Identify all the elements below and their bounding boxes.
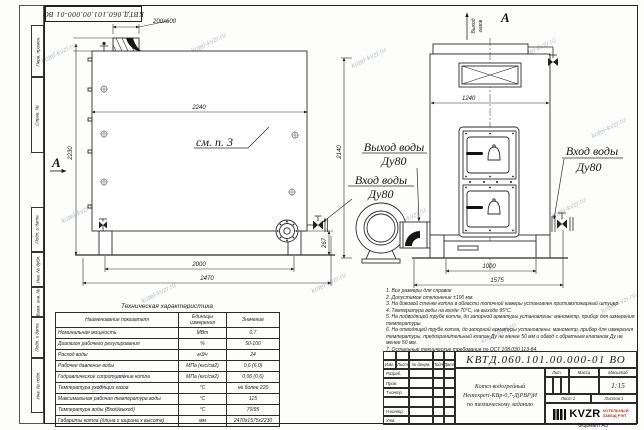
blower-fan <box>356 203 406 263</box>
tb-mass-cell <box>569 377 599 394</box>
title-block: Изм. Лист № докум. Подп. Дата Разраб. Пр… <box>383 351 637 425</box>
spec-value: 0,7 <box>227 328 280 339</box>
drawing-sheet: kotel-kvzr.ru kotel-kvzr.ru kotel-kvzr.r… <box>0 0 644 430</box>
water-outlet-label: Выход воды <box>364 140 425 154</box>
spec-table-block: Техническая характеристика Наименование … <box>55 303 279 427</box>
kvzr-logo-text: KVZR <box>569 408 600 420</box>
dim-chimney-label: 200х600 <box>152 19 177 25</box>
outlet-flange <box>276 220 298 242</box>
flue-stub <box>113 38 142 51</box>
front-inlet-label: Вход воды <box>566 144 618 158</box>
spec-name: Максимальная рабочая температура воды <box>56 394 179 405</box>
section-a-left: А <box>51 155 61 170</box>
spec-row: Диапазон рабочего регулирования%50-100 <box>56 339 280 350</box>
spec-name: Номинальная мощность <box>56 328 179 339</box>
tb-logo-cell: KVZR КОТЕЛЬНЫЙ ЗАВОД РЭП <box>545 403 637 425</box>
dim-2140-label: 2140 <box>337 145 343 160</box>
spec-row: Температура уходящих газов°Сне более 220 <box>56 383 280 394</box>
spec-value: 115 <box>227 394 280 405</box>
tb-cell <box>409 351 433 360</box>
see-note-label: см. п. 3 <box>196 135 233 149</box>
tb-cell <box>444 351 455 360</box>
spec-row: Габариты котла (длина х ширина х высота)… <box>56 416 280 427</box>
tb-mass-header: Масса <box>569 368 599 377</box>
technical-notes: 1. Все размеры для справок 2. Допустимое… <box>386 288 636 353</box>
spec-units: % <box>179 339 227 350</box>
dim-2230-label: 2230 <box>68 146 74 161</box>
section-a-top: А <box>500 10 510 25</box>
tb-sheets-cell: Листов 1 <box>591 394 637 403</box>
spec-row: Номинальная мощностьМВт0,7 <box>56 328 280 339</box>
spec-table-title: Техническая характеристика <box>55 303 279 310</box>
tb-row-razrab: Разраб. <box>383 369 409 378</box>
tb-cell <box>444 397 455 407</box>
tb-cell <box>433 416 444 425</box>
dim-1240-label: 1240 <box>462 96 476 102</box>
spec-name: Габариты котла (длина х ширина х высота) <box>56 416 179 427</box>
spec-name: Диапазон рабочего регулирования <box>56 339 179 350</box>
spec-header-row: Наименование показателя Единицы измерени… <box>56 313 280 328</box>
note-line: 5. На подводящей трубе котла, до запорно… <box>386 314 636 327</box>
tb-cell <box>409 378 433 388</box>
note-line: 3. На боковой стенке котла в области топ… <box>386 301 636 308</box>
spec-row: Рабочее давление водыМПа (кгс/см2)0,6 (6… <box>56 361 280 372</box>
tb-project-title-cell: Котел водогрейный Heatexpert-КВр-0,7-Д(Р… <box>455 368 545 425</box>
tb-cell <box>409 369 433 378</box>
spec-col-value: Значение <box>227 313 280 328</box>
spec-value: 70/95 <box>227 405 280 416</box>
tb-cell <box>433 397 444 407</box>
tb-cell <box>444 407 455 416</box>
tb-cell <box>433 369 444 378</box>
spec-name: Температура воды (Вход/выход) <box>56 405 179 416</box>
note-line: 6. На отводящей трубе котла, до запорной… <box>386 327 636 347</box>
tb-cell <box>433 351 444 360</box>
spec-col-units: Единицы измерения <box>179 313 227 328</box>
tb-cell <box>396 351 409 360</box>
water-inlet-label: Вход воды <box>355 173 407 187</box>
water-outlet-dn: Ду80 <box>381 154 407 168</box>
tb-h-doc: № докум. <box>409 360 433 369</box>
tb-cell <box>409 416 433 425</box>
spec-units: °С <box>179 383 227 394</box>
tb-cell <box>409 407 433 416</box>
tb-row-nkontr: Н.контр. <box>383 407 409 416</box>
spec-units: мм <box>179 416 227 427</box>
door-assembly <box>459 127 519 237</box>
tb-h-list: Лист <box>396 360 409 369</box>
project-title-line2: Heatexpert-КВр-0,7-Д(РВР)И <box>463 392 537 401</box>
spec-col-name: Наименование показателя <box>56 313 179 328</box>
spec-units: °С <box>179 394 227 405</box>
spec-units: МПа (кгс/см2) <box>179 361 227 372</box>
format-note: Формат А3 <box>578 423 608 429</box>
spec-value: 24 <box>227 350 280 361</box>
side-inlet-valve <box>307 216 328 232</box>
dim-1000-label: 1000 <box>482 264 496 270</box>
tb-sheet-cell: Лист 1 <box>545 394 591 403</box>
tb-row-utv: Утв. <box>383 416 409 425</box>
spec-value: 0,06 (0,6) <box>227 372 280 383</box>
dim-267-label: 267 <box>322 237 328 249</box>
dim-1575-label: 1575 <box>490 278 504 284</box>
tb-lit-cell <box>561 377 569 394</box>
water-inlet-dn: Ду80 <box>368 187 394 201</box>
spec-units: МВт <box>179 328 227 339</box>
scale-value: 1:15 <box>611 381 625 390</box>
tb-h-date: Дата <box>444 360 455 369</box>
spec-value: не более 220 <box>227 383 280 394</box>
tb-cell <box>383 351 396 360</box>
tb-cell <box>409 397 433 407</box>
gas-outlet-label-2: газов <box>478 19 484 32</box>
company-name-line2: ЗАВОД РЭП <box>603 414 629 419</box>
tb-row-prov: Пров. <box>383 378 409 388</box>
spec-row: Гидравлическое сопротивление котлаМПа (к… <box>56 372 280 383</box>
front-inlet-dn: Ду80 <box>576 160 602 174</box>
spec-units: МПа (кгс/см2) <box>179 372 227 383</box>
tb-h-sign: Подп. <box>433 360 444 369</box>
spec-row: Максимальная рабочая температура воды°С1… <box>56 394 280 405</box>
project-title-line3: по техническому заданию <box>463 401 537 410</box>
spec-value: 50-100 <box>227 339 280 350</box>
tb-cell <box>433 378 444 388</box>
tb-lit-cell <box>545 377 553 394</box>
spec-value: 0,6 (6,0) <box>227 361 280 372</box>
project-title-line1: Котел водогрейный <box>463 383 537 392</box>
tb-cell <box>444 369 455 378</box>
dim-2000-label: 2000 <box>191 262 206 268</box>
tb-scale-header: Масштаб <box>599 368 637 377</box>
spec-row: Расход водым3/ч24 <box>56 350 280 361</box>
tb-lit-cell <box>553 377 561 394</box>
doc-number: КВТД.060.101.00.000-01 ВО <box>466 354 626 366</box>
tb-cell <box>409 388 433 397</box>
tb-cell <box>444 416 455 425</box>
tb-row-empty <box>383 397 409 407</box>
tb-cell <box>433 407 444 416</box>
spec-units: м3/ч <box>179 350 227 361</box>
tb-scale-cell: 1:15 <box>599 377 637 394</box>
spec-value: 2470х1575х2230 <box>227 416 280 427</box>
gas-outlet-label-1: Выход <box>471 18 477 33</box>
tb-doc-number-cell: КВТД.060.101.00.000-01 ВО <box>455 351 637 368</box>
spec-units: °С <box>179 405 227 416</box>
roof-valve <box>100 42 108 51</box>
explosion-hatch-panel <box>459 63 521 87</box>
spec-table: Наименование показателя Единицы измерени… <box>55 312 280 427</box>
spec-name: Гидравлическое сопротивление котла <box>56 372 179 383</box>
dim-2240-label: 2240 <box>191 105 206 111</box>
front-inlet-valve <box>552 213 573 232</box>
tb-h-izm: Изм. <box>383 360 396 369</box>
spec-name: Расход воды <box>56 350 179 361</box>
tb-cell <box>444 388 455 397</box>
spec-name: Рабочее давление воды <box>56 361 179 372</box>
kvzr-logo-icon <box>553 409 567 420</box>
tb-row-tkontr: Т.контр. <box>383 388 409 397</box>
tb-cell <box>444 378 455 388</box>
dim-2470-label: 2470 <box>199 276 214 282</box>
tb-cell <box>433 388 444 397</box>
fan-outlet-duct <box>400 222 430 248</box>
tb-lit-header: Лит. <box>545 368 569 377</box>
spec-row: Температура воды (Вход/выход)°С70/95 <box>56 405 280 416</box>
spec-name: Температура уходящих газов <box>56 383 179 394</box>
